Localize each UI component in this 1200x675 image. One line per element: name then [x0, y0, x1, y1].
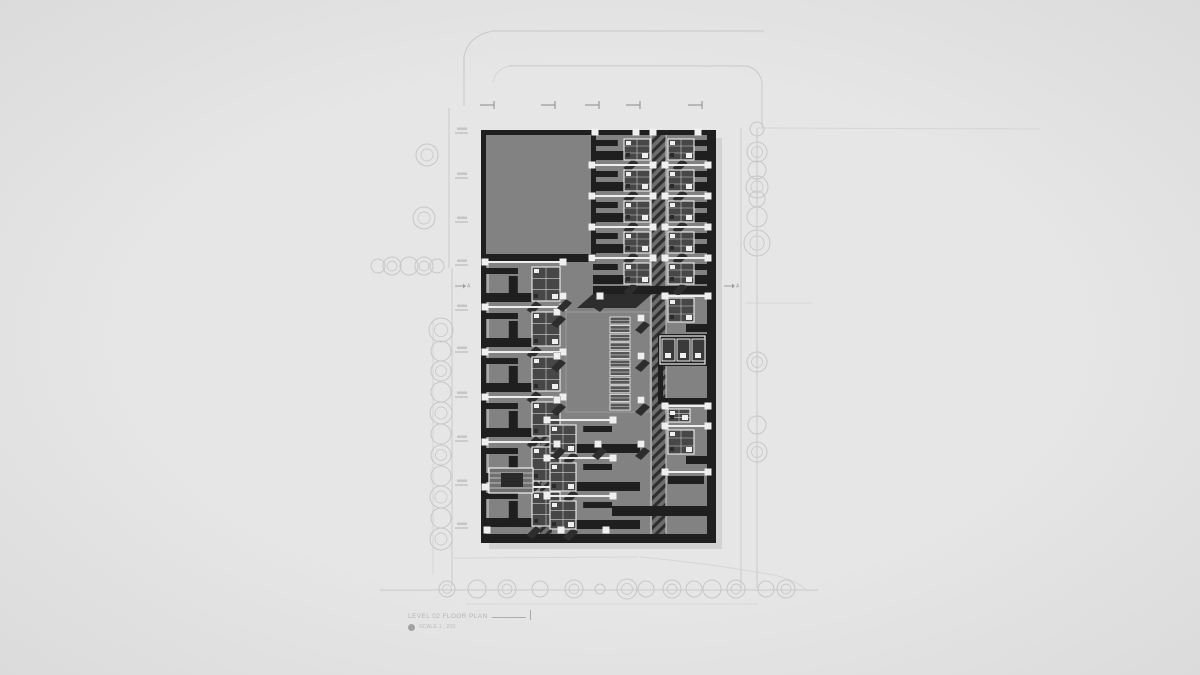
drawing-title: LEVEL 02 FLOOR PLAN — [408, 614, 488, 621]
elevator-core — [660, 336, 705, 364]
scale-dot-icon — [408, 624, 415, 631]
survey-markers — [480, 101, 702, 109]
title-end-tick — [530, 610, 531, 620]
svg-text:A: A — [736, 284, 740, 290]
site-plan-page: AA LEVEL 02 FLOOR PLAN SCALE 1 : 200 — [0, 0, 1200, 675]
drawing-scale: SCALE 1 : 200 — [419, 625, 455, 631]
louver-room — [489, 468, 533, 493]
stair-ladder — [610, 317, 630, 410]
dimension-ticks — [455, 128, 468, 529]
building-plan — [481, 129, 722, 550]
title-underline — [492, 617, 526, 618]
svg-text:A: A — [467, 284, 471, 290]
title-block: LEVEL 02 FLOOR PLAN SCALE 1 : 200 — [408, 610, 531, 631]
site-plan-drawing: AA — [0, 0, 1200, 675]
